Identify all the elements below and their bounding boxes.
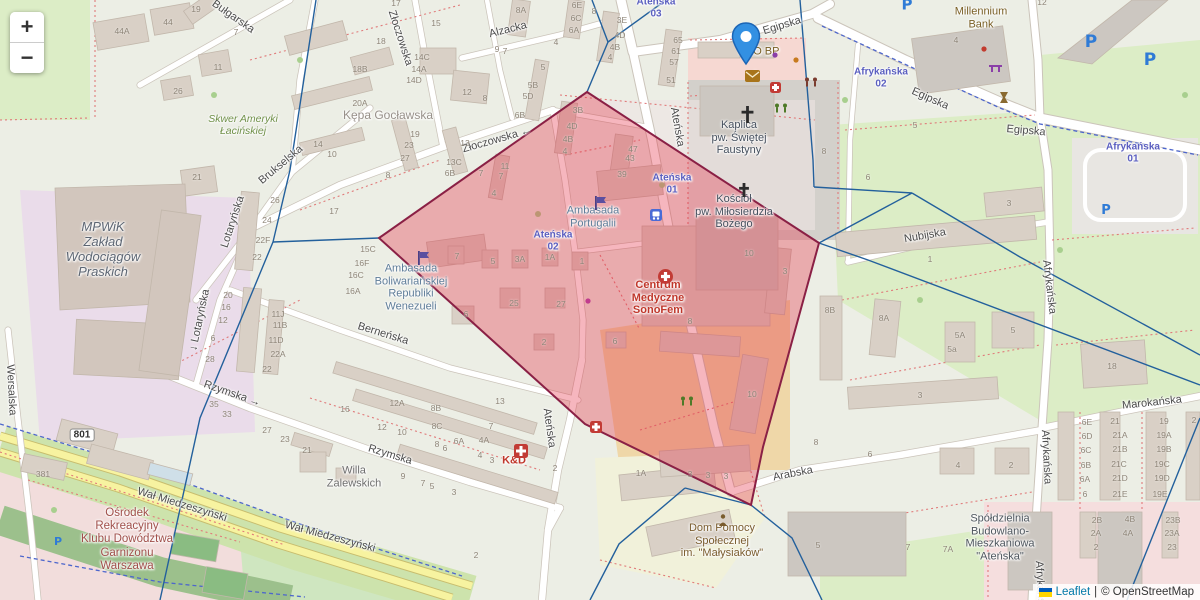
voronoi-cell-boundary	[819, 243, 1200, 385]
attribution-separator: |	[1094, 586, 1097, 598]
voronoi-cell-boundary	[819, 193, 912, 243]
zoom-out-button[interactable]: −	[10, 43, 44, 73]
voronoi-cell-boundary	[587, 42, 608, 92]
highlighted-region-polygon[interactable]	[379, 92, 819, 505]
voronoi-cell-boundary	[273, 238, 379, 242]
map-canvas[interactable]: BułgarskaAlzackaEgipskaEgipskaEgipskaAfr…	[0, 0, 1200, 600]
voronoi-cell-boundary	[608, 0, 666, 42]
voronoi-cell-boundary	[800, 0, 814, 187]
zoom-in-button[interactable]: +	[10, 12, 44, 43]
voronoi-cell-boundary	[160, 242, 273, 600]
voronoi-cell-boundary	[592, 0, 608, 42]
voronoi-cell-boundary	[1127, 418, 1200, 600]
road-shield-801: 801	[70, 429, 95, 442]
attribution-bar: Leaflet | © OpenStreetMap	[1033, 584, 1200, 600]
voronoi-cell-boundary	[273, 0, 316, 242]
map-marker[interactable]	[731, 22, 761, 66]
zoom-control: + −	[10, 12, 44, 73]
overlay-layer	[0, 0, 1200, 600]
osm-attribution: © OpenStreetMap	[1101, 586, 1194, 598]
voronoi-cell-boundary	[590, 488, 685, 600]
voronoi-cell-boundary	[814, 187, 912, 193]
voronoi-cell-boundary	[751, 505, 822, 600]
ukraine-flag-icon	[1039, 588, 1052, 597]
leaflet-link[interactable]: Leaflet	[1056, 586, 1091, 598]
